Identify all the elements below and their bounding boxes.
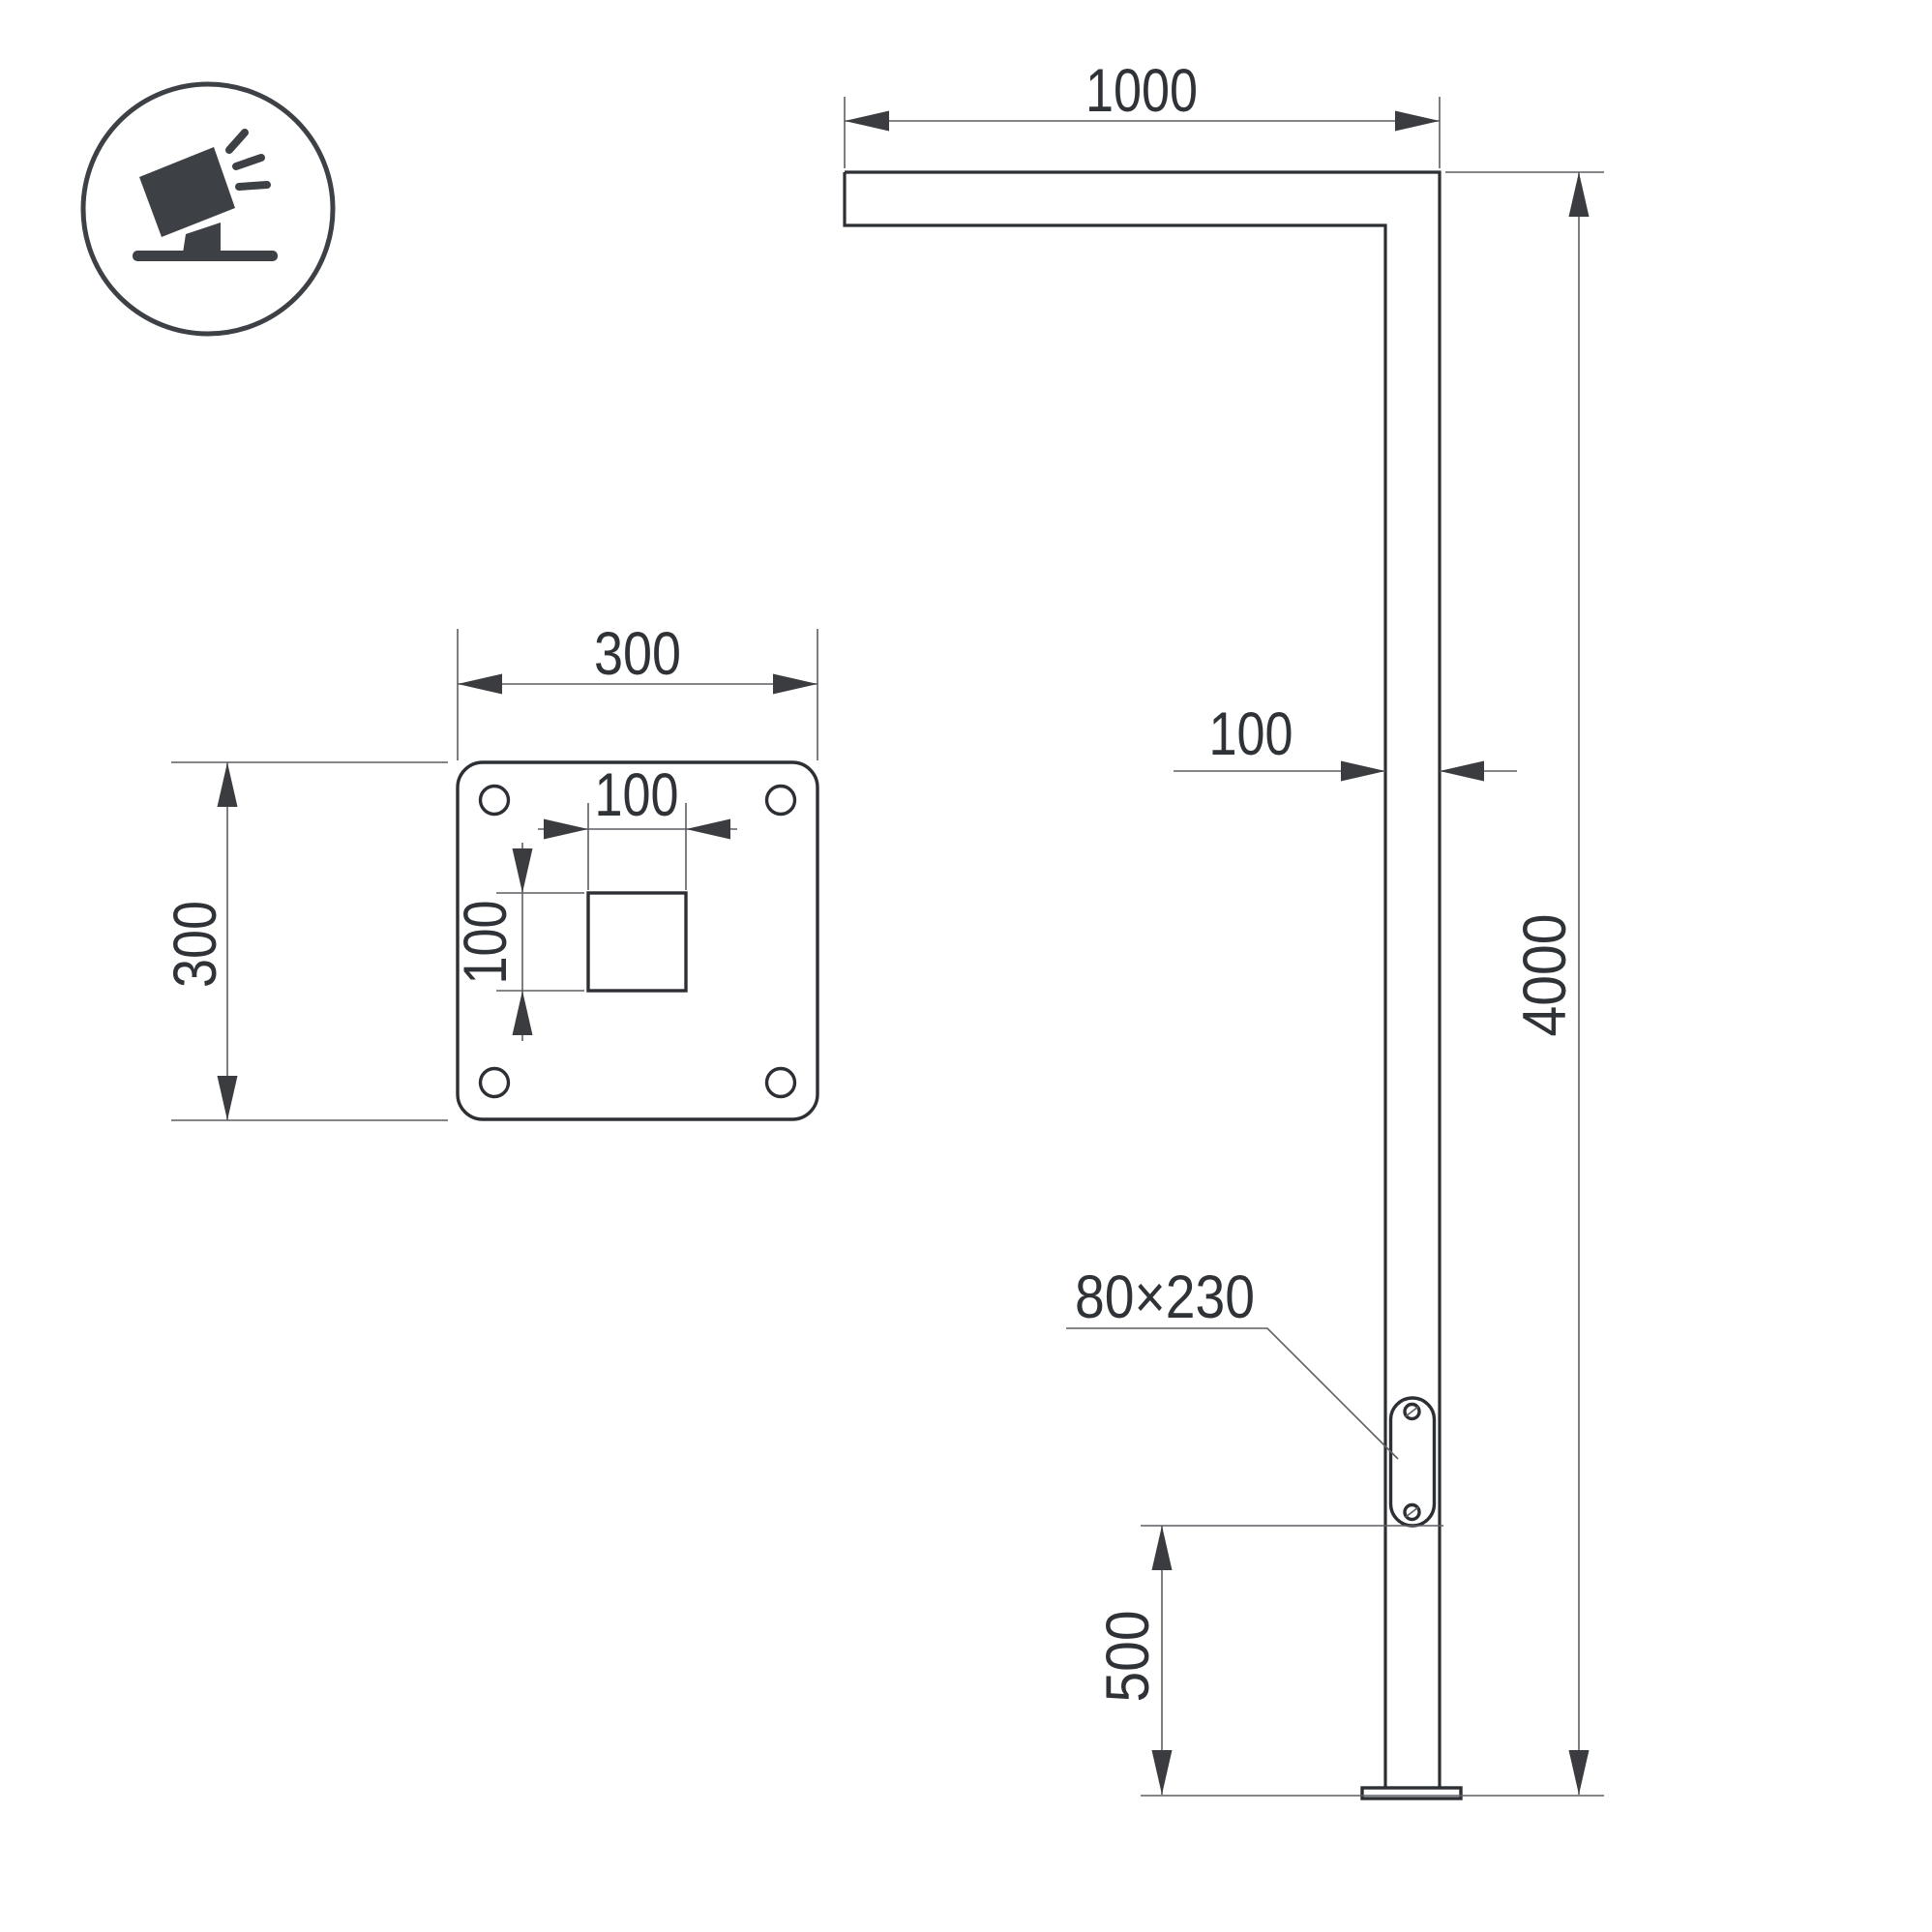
floodlight-base [133,251,278,261]
dim-plate-width: 300 [458,620,817,760]
hand-hole-elevation-label: 500 [1094,1611,1162,1703]
floodlight-body [139,147,235,237]
arm-length-label: 1000 [1085,57,1198,125]
light-ray-middle [236,158,261,166]
bolt-hole-bottom-right [767,1069,795,1097]
drawing-canvas: 300 300 100 100 [0,0,1932,1932]
bolt-hole-top-right [767,787,795,815]
pole-width-label: 100 [1209,700,1293,768]
floodlight-icon [83,84,333,334]
pole-foot-plate [1362,1788,1461,1798]
plate-height-label: 300 [162,901,229,988]
pole-outline-outer [845,172,1440,1788]
cutout-width-label: 100 [595,761,679,829]
plate-width-label: 300 [594,620,681,688]
total-height-label: 4000 [1511,914,1579,1037]
hand-hole-cover [1391,1398,1435,1526]
pole-outline-inner [845,172,1385,1788]
dim-arm-length: 1000 [845,57,1440,168]
dim-pole-width: 100 [1174,700,1517,782]
dim-plate-height: 300 [162,762,448,1120]
hand-hole-size-label: 80×230 [1075,1263,1255,1331]
bolt-hole-top-left [481,787,509,815]
light-ray-top [229,133,245,150]
dim-total-height: 4000 [1445,172,1604,1795]
light-ray-bottom [239,185,267,187]
technical-drawing: 300 300 100 100 [0,0,1932,1932]
light-rays [229,133,267,187]
leader-line [1066,1328,1398,1459]
leader-hand-hole-size: 80×230 [1066,1263,1398,1459]
dim-hand-hole-elevation: 500 [1094,1526,1443,1795]
pole-side-view: 1000 100 4000 500 80× [845,57,1604,1798]
cutout-height-label: 100 [452,901,520,985]
center-cutout [588,893,686,991]
bolt-hole-bottom-left [481,1069,509,1097]
base-plate-top-view: 300 300 100 100 [162,620,817,1120]
